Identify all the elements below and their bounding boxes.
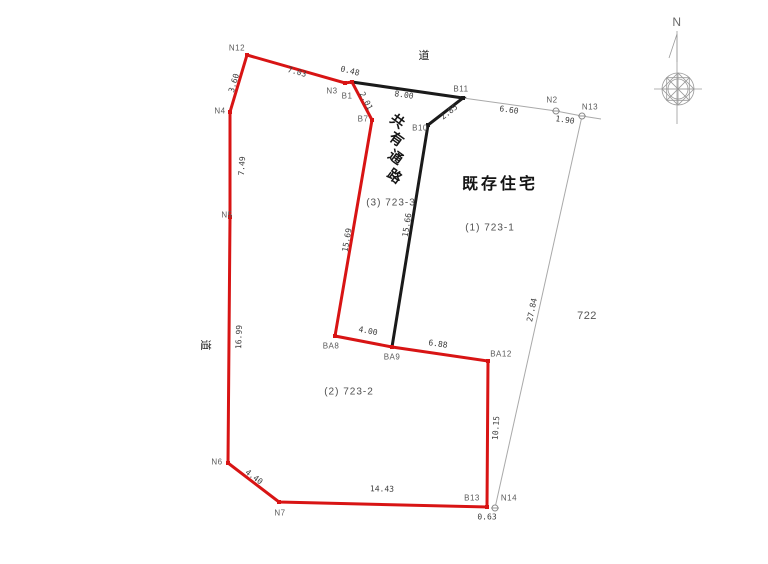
point-label-b11: B11 [453, 85, 468, 94]
existing-house-label: 既存住宅 [462, 170, 538, 194]
parcel-label-723-3: (3) 723-3 [366, 198, 416, 209]
survey-plan: N12 N3 B1 B7 B11 B10 N2 N13 N4 N5 N6 N7 … [0, 0, 768, 564]
dimension-label-n4-n5: 7.49 [237, 156, 247, 176]
point-label-b7: B7 [358, 115, 369, 124]
point-label-n13: N13 [582, 103, 598, 112]
adjacent-lot-label-722: 722 [577, 310, 597, 322]
point-label-n5: N5 [221, 211, 232, 220]
point-label-ba8: BA8 [323, 342, 340, 351]
parcel-label-723-1: (1) 723-1 [465, 223, 515, 234]
point-label-n6: N6 [211, 458, 222, 467]
dimension-label-n5-n6: 16.99 [234, 325, 244, 349]
dimension-label-n7-b13: 14.43 [370, 484, 394, 493]
road-label-top: 道 [419, 47, 430, 63]
compass-north-label: N [672, 15, 681, 29]
point-label-n4: N4 [214, 107, 225, 116]
point-label-b1: B1 [342, 92, 353, 101]
benchmark-markers [491, 108, 586, 511]
point-label-ba12: BA12 [490, 350, 512, 359]
parcel-label-723-2: (2) 723-2 [324, 387, 374, 398]
point-label-n3: N3 [326, 87, 337, 96]
point-label-n14: N14 [501, 494, 517, 503]
compass-spokes [662, 73, 694, 105]
point-label-n2: N2 [546, 96, 557, 105]
point-label-n12: N12 [229, 44, 245, 53]
point-label-b13: B13 [464, 494, 480, 503]
north-arrow-icon [669, 34, 677, 62]
point-label-ba9: BA9 [384, 353, 401, 362]
shared-passage-label: 共有通路 [387, 112, 405, 185]
compass-rose [654, 31, 702, 124]
survey-plan-drawing [0, 0, 768, 564]
dimension-label-ba12-b13: 10.15 [491, 416, 502, 441]
road-label-left: 道 [198, 340, 214, 351]
point-label-n7: N7 [274, 509, 285, 518]
point-label-b10: B10 [412, 124, 428, 133]
dimension-label-b13-n14: 0.63 [477, 513, 496, 522]
